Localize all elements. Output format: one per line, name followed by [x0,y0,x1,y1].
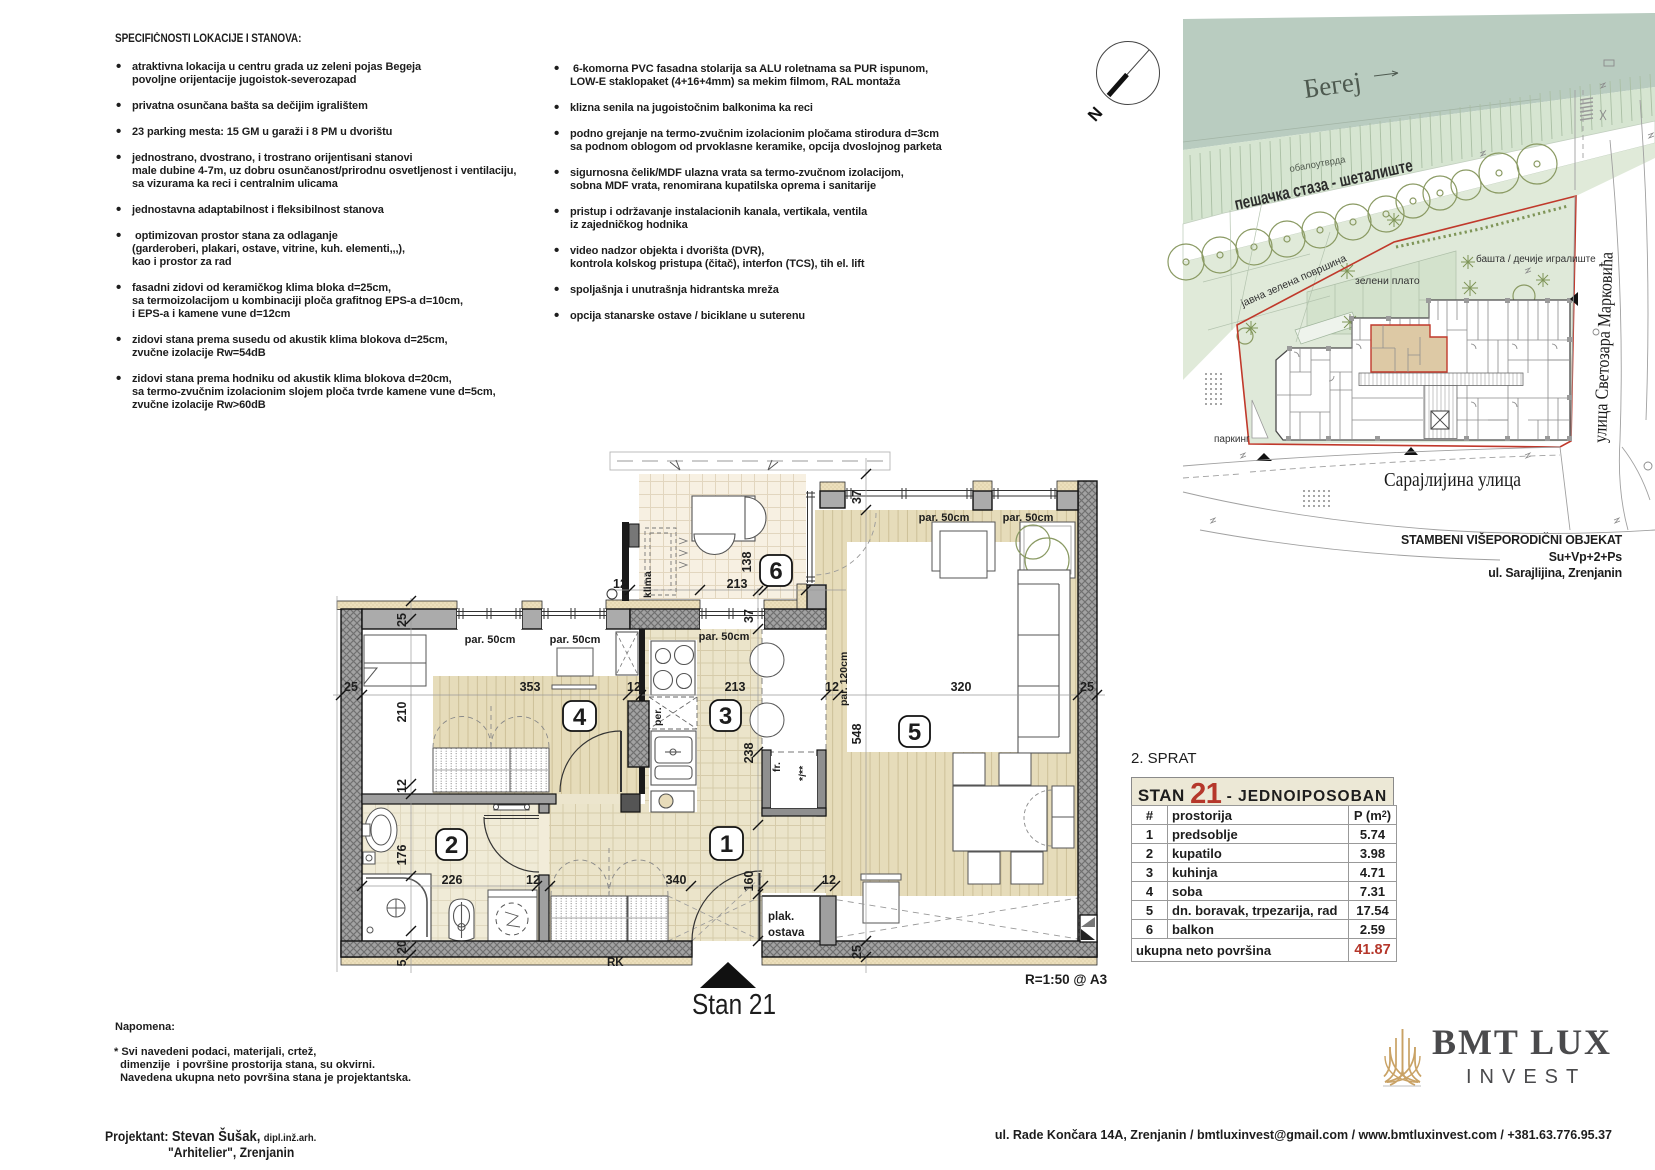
svg-text:INVEST: INVEST [1466,1066,1586,1088]
svg-text:5: 5 [395,959,409,966]
svg-text:25: 25 [1080,680,1094,694]
svg-text:Stan 21: Stan 21 [692,989,776,1021]
svg-text:12: 12 [613,577,627,591]
svg-text:plak.: plak. [768,911,794,923]
svg-text:fr.: fr. [771,762,783,772]
svg-text:226: 226 [442,873,463,887]
svg-text:25: 25 [395,613,409,627]
svg-text:12: 12 [822,873,836,887]
svg-text:par. 50cm: par. 50cm [919,512,970,524]
svg-text:213: 213 [727,577,748,591]
svg-text:210: 210 [395,702,409,723]
svg-text:25: 25 [850,945,864,959]
svg-text:klima: klima [642,571,654,598]
svg-text:238: 238 [742,743,756,764]
svg-text:par. 50cm: par. 50cm [465,634,516,646]
svg-text:5: 5 [908,719,921,746]
svg-text:BMT LUX: BMT LUX [1432,1022,1610,1062]
svg-text:par. 50cm: par. 50cm [699,631,750,643]
svg-text:башта / дечије игралиште: башта / дечије игралиште [1476,253,1596,265]
svg-text:6: 6 [769,558,782,585]
svg-text:160: 160 [742,871,756,892]
svg-text:353: 353 [520,680,541,694]
svg-text:N: N [1084,103,1106,125]
svg-text:улица Светозара Марковића: улица Светозара Марковића [1591,252,1618,444]
svg-text:4: 4 [573,704,587,731]
svg-text:12: 12 [825,680,839,694]
svg-text:176: 176 [395,845,409,866]
svg-text:ostava: ostava [768,927,805,939]
svg-text:1: 1 [720,831,733,858]
svg-text:*/**: */** [797,765,809,781]
svg-text:Сарајлијина улица: Сарајлијина улица [1384,469,1521,491]
svg-text:2: 2 [445,832,458,859]
svg-text:per.: per. [652,707,664,726]
svg-text:25: 25 [344,680,358,694]
svg-text:зелени плато: зелени плато [1355,275,1420,287]
svg-text:паркинг: паркинг [1214,434,1250,445]
svg-text:R=1:50 @ A3: R=1:50 @ A3 [1025,972,1108,987]
svg-text:37: 37 [742,609,756,623]
svg-text:138: 138 [740,552,754,573]
svg-text:20: 20 [395,940,409,954]
svg-text:par. 120cm: par. 120cm [838,652,850,706]
svg-text:320: 320 [951,680,972,694]
svg-text:par. 50cm: par. 50cm [550,634,601,646]
svg-text:RK: RK [607,957,624,969]
svg-text:3: 3 [719,703,732,730]
svg-text:12: 12 [526,873,540,887]
svg-text:340: 340 [666,873,687,887]
svg-text:548: 548 [850,724,864,745]
svg-text:par. 50cm: par. 50cm [1003,512,1054,524]
svg-text:213: 213 [725,680,746,694]
svg-text:37: 37 [850,490,864,504]
svg-text:12: 12 [627,680,641,694]
svg-text:12: 12 [395,779,409,793]
